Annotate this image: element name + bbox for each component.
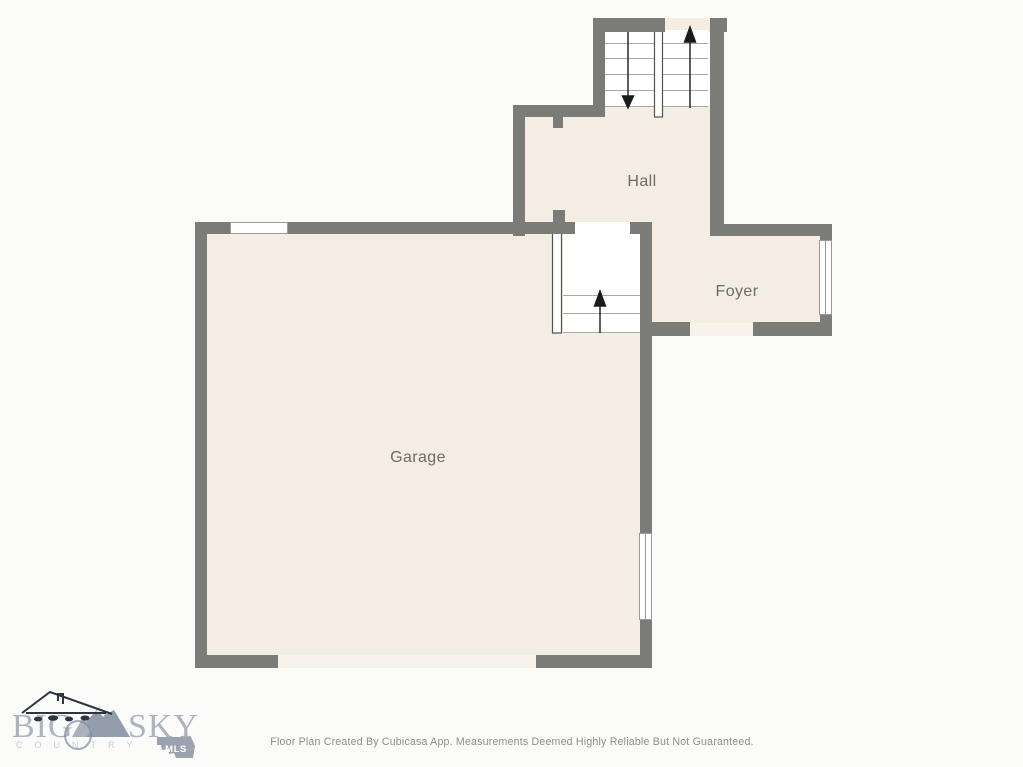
wall — [536, 655, 652, 668]
garage-door-opening — [278, 655, 536, 668]
wall — [593, 18, 665, 32]
wall — [553, 117, 563, 128]
upper-stair-top-opening — [665, 18, 710, 32]
hall-floor — [513, 105, 722, 236]
wall — [753, 322, 832, 336]
garage-top-window — [231, 223, 288, 234]
wall — [652, 322, 690, 336]
room-label-hall: Hall — [627, 173, 656, 190]
wall — [722, 224, 832, 236]
big-sky-logo: BIG SKY COUNTRY MLS — [12, 692, 199, 758]
disclaimer-text: Floor Plan Created By Cubicasa App. Meas… — [270, 736, 753, 748]
wall — [288, 222, 575, 234]
wall — [593, 30, 605, 117]
logo-subtext: COUNTRY — [16, 740, 144, 750]
room-label-foyer: Foyer — [716, 283, 759, 300]
wall — [195, 222, 207, 668]
mls-badge: MLS — [157, 737, 195, 758]
wall — [195, 655, 278, 668]
stair-doorway — [575, 222, 630, 234]
wall — [513, 105, 605, 117]
front-door-opening — [690, 323, 753, 336]
floorplan-page: Hall Foyer Garage BIG SKY COUNTRY — [0, 0, 1023, 767]
floorplan-canvas: Hall Foyer Garage BIG SKY COUNTRY — [0, 0, 1023, 767]
mls-badge-label: MLS — [165, 744, 187, 755]
wall — [710, 18, 724, 236]
room-label-garage: Garage — [390, 449, 446, 466]
upper-stair-railing — [655, 30, 663, 117]
wall — [513, 105, 525, 236]
lower-staircase — [563, 234, 640, 333]
foyer-floor — [640, 224, 832, 336]
lower-stair-railing — [553, 233, 562, 333]
